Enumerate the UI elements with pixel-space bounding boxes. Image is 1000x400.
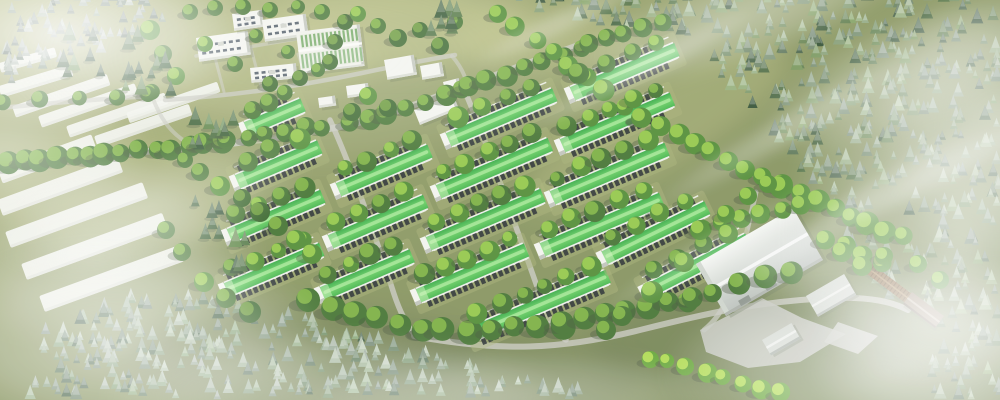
aerial-site-render [0,0,1000,400]
atmosphere [0,0,1000,400]
scene-canvas [0,0,1000,400]
haze-overlay [0,0,1000,400]
